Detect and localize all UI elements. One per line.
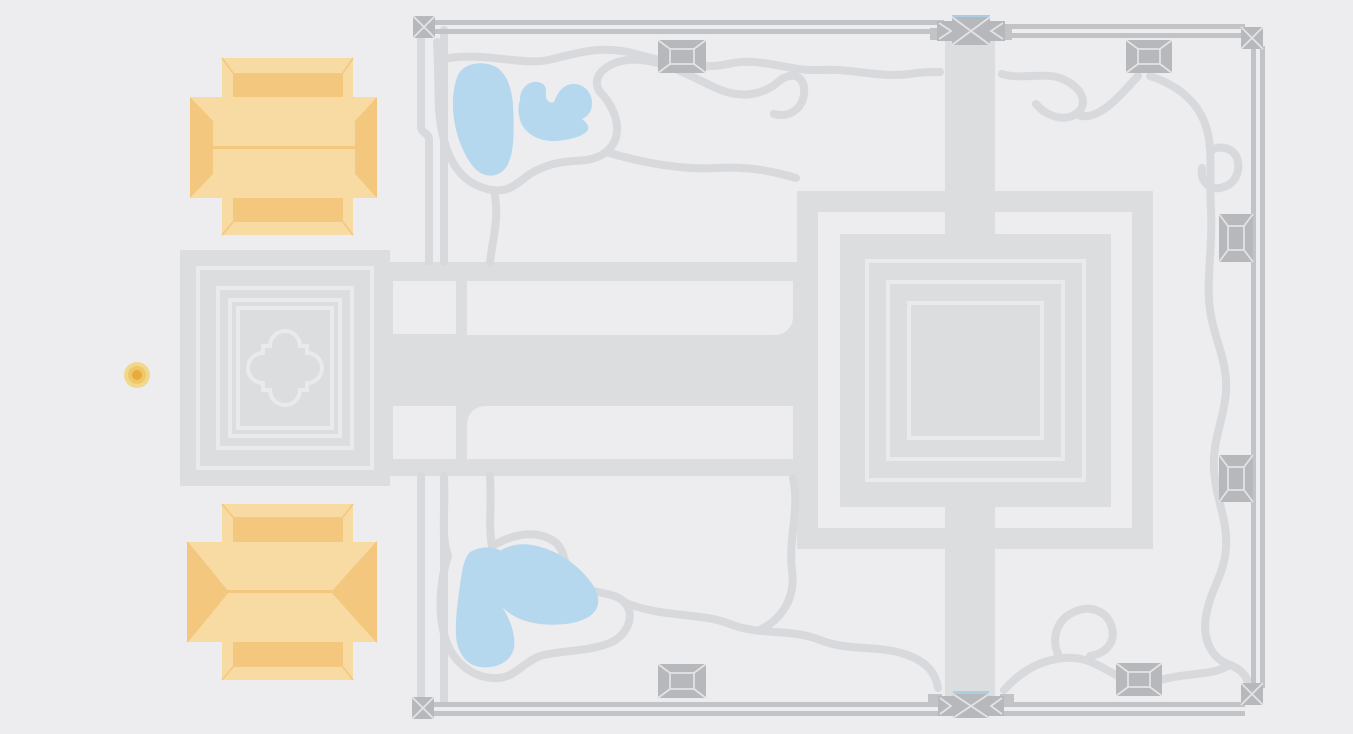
wall-north-inner-right — [1000, 33, 1245, 38]
pavilion-north-left — [658, 40, 706, 73]
north-wing-roof-inner — [233, 517, 343, 542]
corner-tower-northwest — [413, 16, 435, 38]
poi-marker-core — [132, 370, 142, 380]
poi-marker[interactable] — [124, 362, 150, 388]
cloister-corridor — [388, 262, 810, 476]
main-hall-ridge — [213, 146, 355, 149]
wall-north-outer-right — [1000, 24, 1245, 29]
wall-south-inner-right — [1000, 711, 1245, 716]
south-gate — [928, 691, 1014, 718]
courtyard-top-large — [467, 281, 793, 335]
corner-tower-southeast — [1241, 683, 1263, 705]
wall-south-outer-right — [1000, 702, 1245, 707]
south-wing-roof-inner — [233, 198, 343, 222]
sanctuary-inner-platform — [863, 257, 1088, 484]
wall-north-inner-left — [434, 29, 944, 34]
west-gopura — [180, 250, 390, 486]
pavilion-south-right — [1116, 663, 1162, 696]
wall-east-inner — [1260, 46, 1265, 688]
north-wing-roof-inner — [233, 73, 343, 97]
pavilion-south-left — [658, 664, 706, 698]
wall-east-outer — [1251, 46, 1256, 688]
causeway-south — [945, 488, 995, 704]
courtyard-bottom-large — [467, 406, 793, 459]
courtyard-top-small — [393, 281, 456, 334]
wall-south-outer-left — [430, 702, 942, 707]
pavilion-north-right — [1126, 40, 1172, 73]
central-sanctuary — [797, 191, 1153, 549]
corner-tower-southwest — [412, 697, 434, 719]
pavilion-east-upper — [1219, 214, 1253, 262]
wall-north-outer-left — [434, 20, 944, 25]
south-wing-roof-inner — [233, 642, 343, 667]
main-hall-ridge — [228, 590, 332, 593]
causeway-north — [945, 33, 995, 255]
pavilion-east-lower — [1219, 455, 1253, 502]
corner-tower-northeast — [1241, 27, 1263, 49]
trail — [490, 476, 492, 546]
courtyard-bottom-small — [393, 406, 456, 459]
gopura-base — [180, 250, 390, 486]
gate-entrance-line — [953, 691, 989, 694]
map-canvas[interactable] — [0, 0, 1353, 734]
map-svg — [0, 0, 1353, 734]
wall-south-inner-left — [430, 711, 942, 716]
